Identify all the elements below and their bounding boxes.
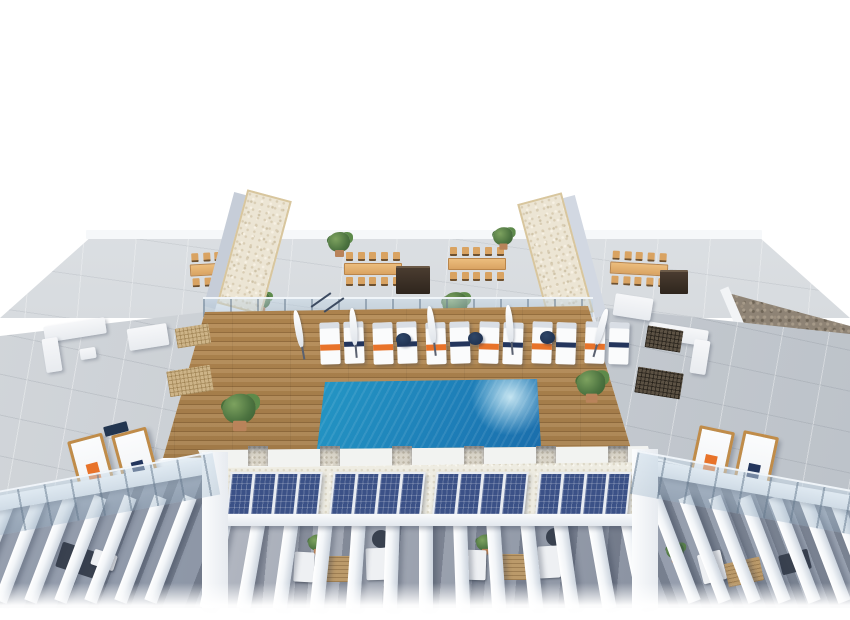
potted-plant: [328, 232, 350, 257]
dining-chair: [450, 247, 457, 256]
dining-chair: [369, 252, 376, 261]
sun-lounger: [608, 322, 629, 365]
sun-lounger-pair: [425, 321, 470, 365]
sun-lounger-pair: [372, 321, 417, 365]
dining-chair: [191, 253, 198, 262]
dining-chair: [381, 252, 388, 261]
glass-railing-back: [203, 297, 593, 317]
orange-towel: [479, 343, 499, 350]
shaded-plant-pot: [546, 528, 564, 546]
sun-lounger: [343, 321, 364, 364]
deck-potted-plant: [223, 394, 256, 432]
sun-lounger: [396, 321, 417, 364]
dining-chair: [624, 251, 631, 260]
roof-grate: [175, 323, 212, 348]
sun-lounger: [425, 322, 446, 365]
dining-set: [344, 252, 402, 286]
sun-lounger: [478, 321, 499, 364]
lounge-pad: [613, 293, 654, 321]
dining-table: [448, 258, 506, 270]
terrace-lounger: [465, 550, 486, 581]
orange-towel: [532, 343, 552, 350]
dining-chair: [369, 277, 376, 286]
dining-chair-row: [344, 252, 402, 261]
dining-chair: [358, 277, 365, 286]
dining-chair: [485, 272, 492, 281]
dining-chair: [647, 252, 654, 261]
terrace-rug: [500, 554, 536, 580]
deck-pier: [536, 446, 556, 466]
orange-towel: [373, 344, 393, 351]
dining-chair: [473, 247, 480, 256]
lounge-pad: [127, 323, 170, 351]
sun-lounger-pair: [478, 321, 523, 365]
outdoor-kitchen-cabinet: [660, 270, 688, 294]
outdoor-kitchen-cabinet: [396, 266, 430, 294]
pool-side-table: [468, 332, 483, 345]
dining-chair: [393, 252, 400, 261]
sun-lounger: [502, 322, 523, 365]
dining-chair: [473, 272, 480, 281]
sun-lounger: [449, 321, 470, 364]
sun-lounger: [319, 322, 340, 365]
terrace-lounger: [365, 548, 388, 581]
dining-chair: [462, 272, 469, 281]
orange-towel: [426, 344, 446, 351]
dining-chair-row: [448, 272, 506, 281]
deck-pier: [392, 446, 412, 466]
terrace-lounger: [537, 545, 561, 578]
dining-chair: [485, 247, 492, 256]
dining-chair: [193, 278, 200, 287]
deck-pier: [464, 446, 484, 466]
terrace-lounger: [697, 550, 728, 585]
deck-pier: [248, 446, 268, 466]
dining-chair: [635, 277, 642, 286]
dining-chair: [623, 276, 630, 285]
navy-towel: [397, 341, 417, 347]
terrace-plant: [666, 543, 684, 563]
navy-towel: [344, 341, 364, 347]
pergola-header-center: [210, 514, 646, 526]
shaded-furniture: [778, 549, 812, 576]
deck-pier: [608, 446, 628, 466]
roof-grate: [166, 365, 214, 398]
dining-chair-row: [610, 251, 668, 263]
dining-chair: [381, 277, 388, 286]
dining-chair: [358, 252, 365, 261]
dining-chair: [497, 272, 504, 281]
terrace-rug: [322, 556, 356, 582]
coffee-table: [79, 347, 97, 360]
rooftop-render-canvas: [0, 0, 850, 620]
dining-chair: [203, 252, 210, 261]
roof-grate: [645, 325, 684, 352]
terrace-lounger: [293, 551, 315, 582]
dining-chair: [659, 253, 666, 262]
dining-chair: [611, 276, 618, 285]
potted-plant: [493, 227, 513, 250]
stair-tower-right: [513, 189, 612, 350]
sun-lounger-pair: [319, 321, 364, 365]
dining-chair-row: [344, 277, 402, 286]
dining-table: [344, 263, 402, 275]
dining-set: [448, 247, 506, 281]
navy-towel: [450, 341, 470, 347]
dining-chair: [613, 251, 620, 260]
navy-towel: [609, 342, 629, 348]
outdoor-sofa: [41, 337, 62, 373]
render-bottom-fade: [0, 583, 850, 620]
dining-chair-row: [609, 275, 667, 287]
shaded-plant-pot: [372, 530, 390, 548]
dining-chair: [346, 277, 353, 286]
sun-lounger: [372, 322, 393, 365]
orange-towel: [585, 343, 605, 350]
back-parapet-wall: [86, 230, 762, 239]
navy-towel: [503, 342, 523, 348]
dining-chair: [646, 277, 653, 286]
dining-chair: [636, 252, 643, 261]
dining-chair: [462, 247, 469, 256]
roof-grate: [634, 367, 684, 400]
pool-side-table: [396, 333, 411, 346]
orange-towel: [320, 344, 340, 351]
dining-chair: [450, 272, 457, 281]
deck-pier: [320, 446, 340, 466]
deck-potted-plant: [577, 370, 606, 403]
